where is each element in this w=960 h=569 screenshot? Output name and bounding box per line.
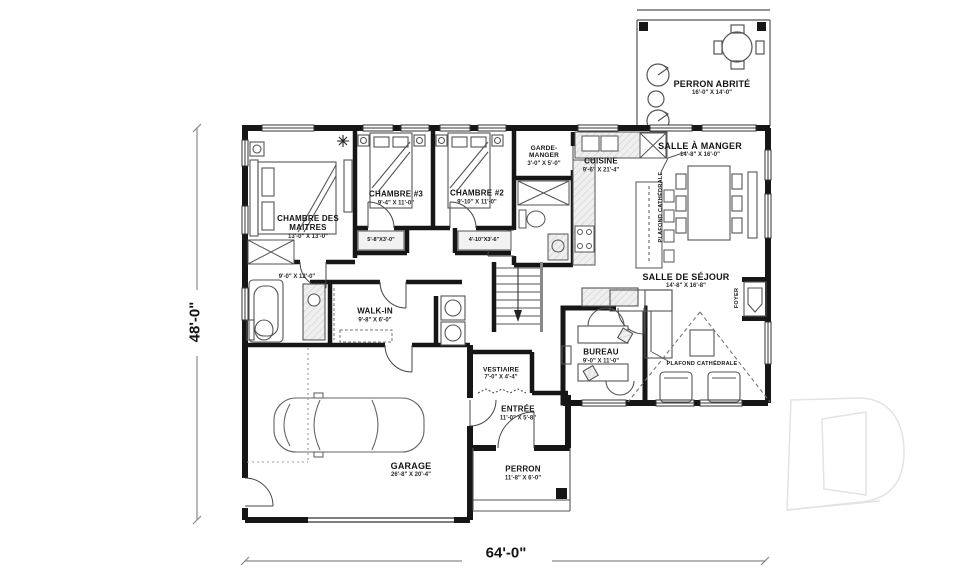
buffet-icon [748, 172, 757, 238]
walk-in-fixtures [334, 288, 392, 342]
porch-post [556, 488, 567, 499]
fireplace-icon [744, 282, 766, 316]
round-table-icon [722, 32, 752, 62]
bureau-furniture [578, 308, 634, 395]
sejour-furniture [562, 288, 770, 402]
armchair-icon [708, 372, 740, 402]
laundry-appliances [441, 296, 465, 345]
dresser-icon [344, 160, 352, 212]
bathroom2-fixtures [518, 181, 569, 260]
bed-icon [370, 133, 412, 208]
bed-icon [448, 133, 490, 208]
leader-line [652, 352, 668, 361]
closets [248, 231, 511, 264]
toilet-icon [247, 320, 254, 340]
dining-furniture [676, 166, 757, 240]
perron-steps [473, 448, 570, 511]
stove-icon [575, 226, 594, 252]
watermark-d-logo [787, 398, 904, 510]
bed-icon [258, 162, 336, 234]
leader-line [668, 152, 686, 158]
garage-contents [247, 348, 424, 462]
armchair-icon [660, 372, 692, 402]
side-table-icon [648, 91, 664, 107]
master-bedroom-furniture [250, 135, 352, 236]
ceiling-fan-icon [337, 135, 349, 147]
perron-abrite-structure [637, 10, 770, 126]
bathroom-fixtures [247, 280, 325, 342]
dining-table-icon [688, 166, 730, 240]
stairs [496, 262, 542, 332]
headboard [250, 160, 258, 236]
porch-furniture [647, 25, 764, 132]
floor-plan-drawing [0, 0, 960, 569]
coffee-table-icon [690, 330, 714, 356]
sink-icon [582, 136, 599, 151]
fireplace [742, 277, 768, 321]
cathedral-ceiling-lines [628, 312, 770, 402]
car-icon [274, 398, 424, 452]
sink-icon [601, 136, 618, 151]
bedroom3-furniture [358, 133, 425, 208]
leader-line [661, 158, 668, 172]
vanity [303, 284, 325, 340]
garage-door [308, 516, 454, 524]
stairs-down-arrow [514, 266, 522, 322]
kitchen-fixtures [573, 132, 674, 268]
floor-plan-canvas: PERRON ABRITÉ 16'-0" X 14'-0" CHAMBRE DE… [0, 0, 960, 569]
toilet-icon [519, 210, 526, 228]
bedroom2-furniture [436, 133, 503, 208]
